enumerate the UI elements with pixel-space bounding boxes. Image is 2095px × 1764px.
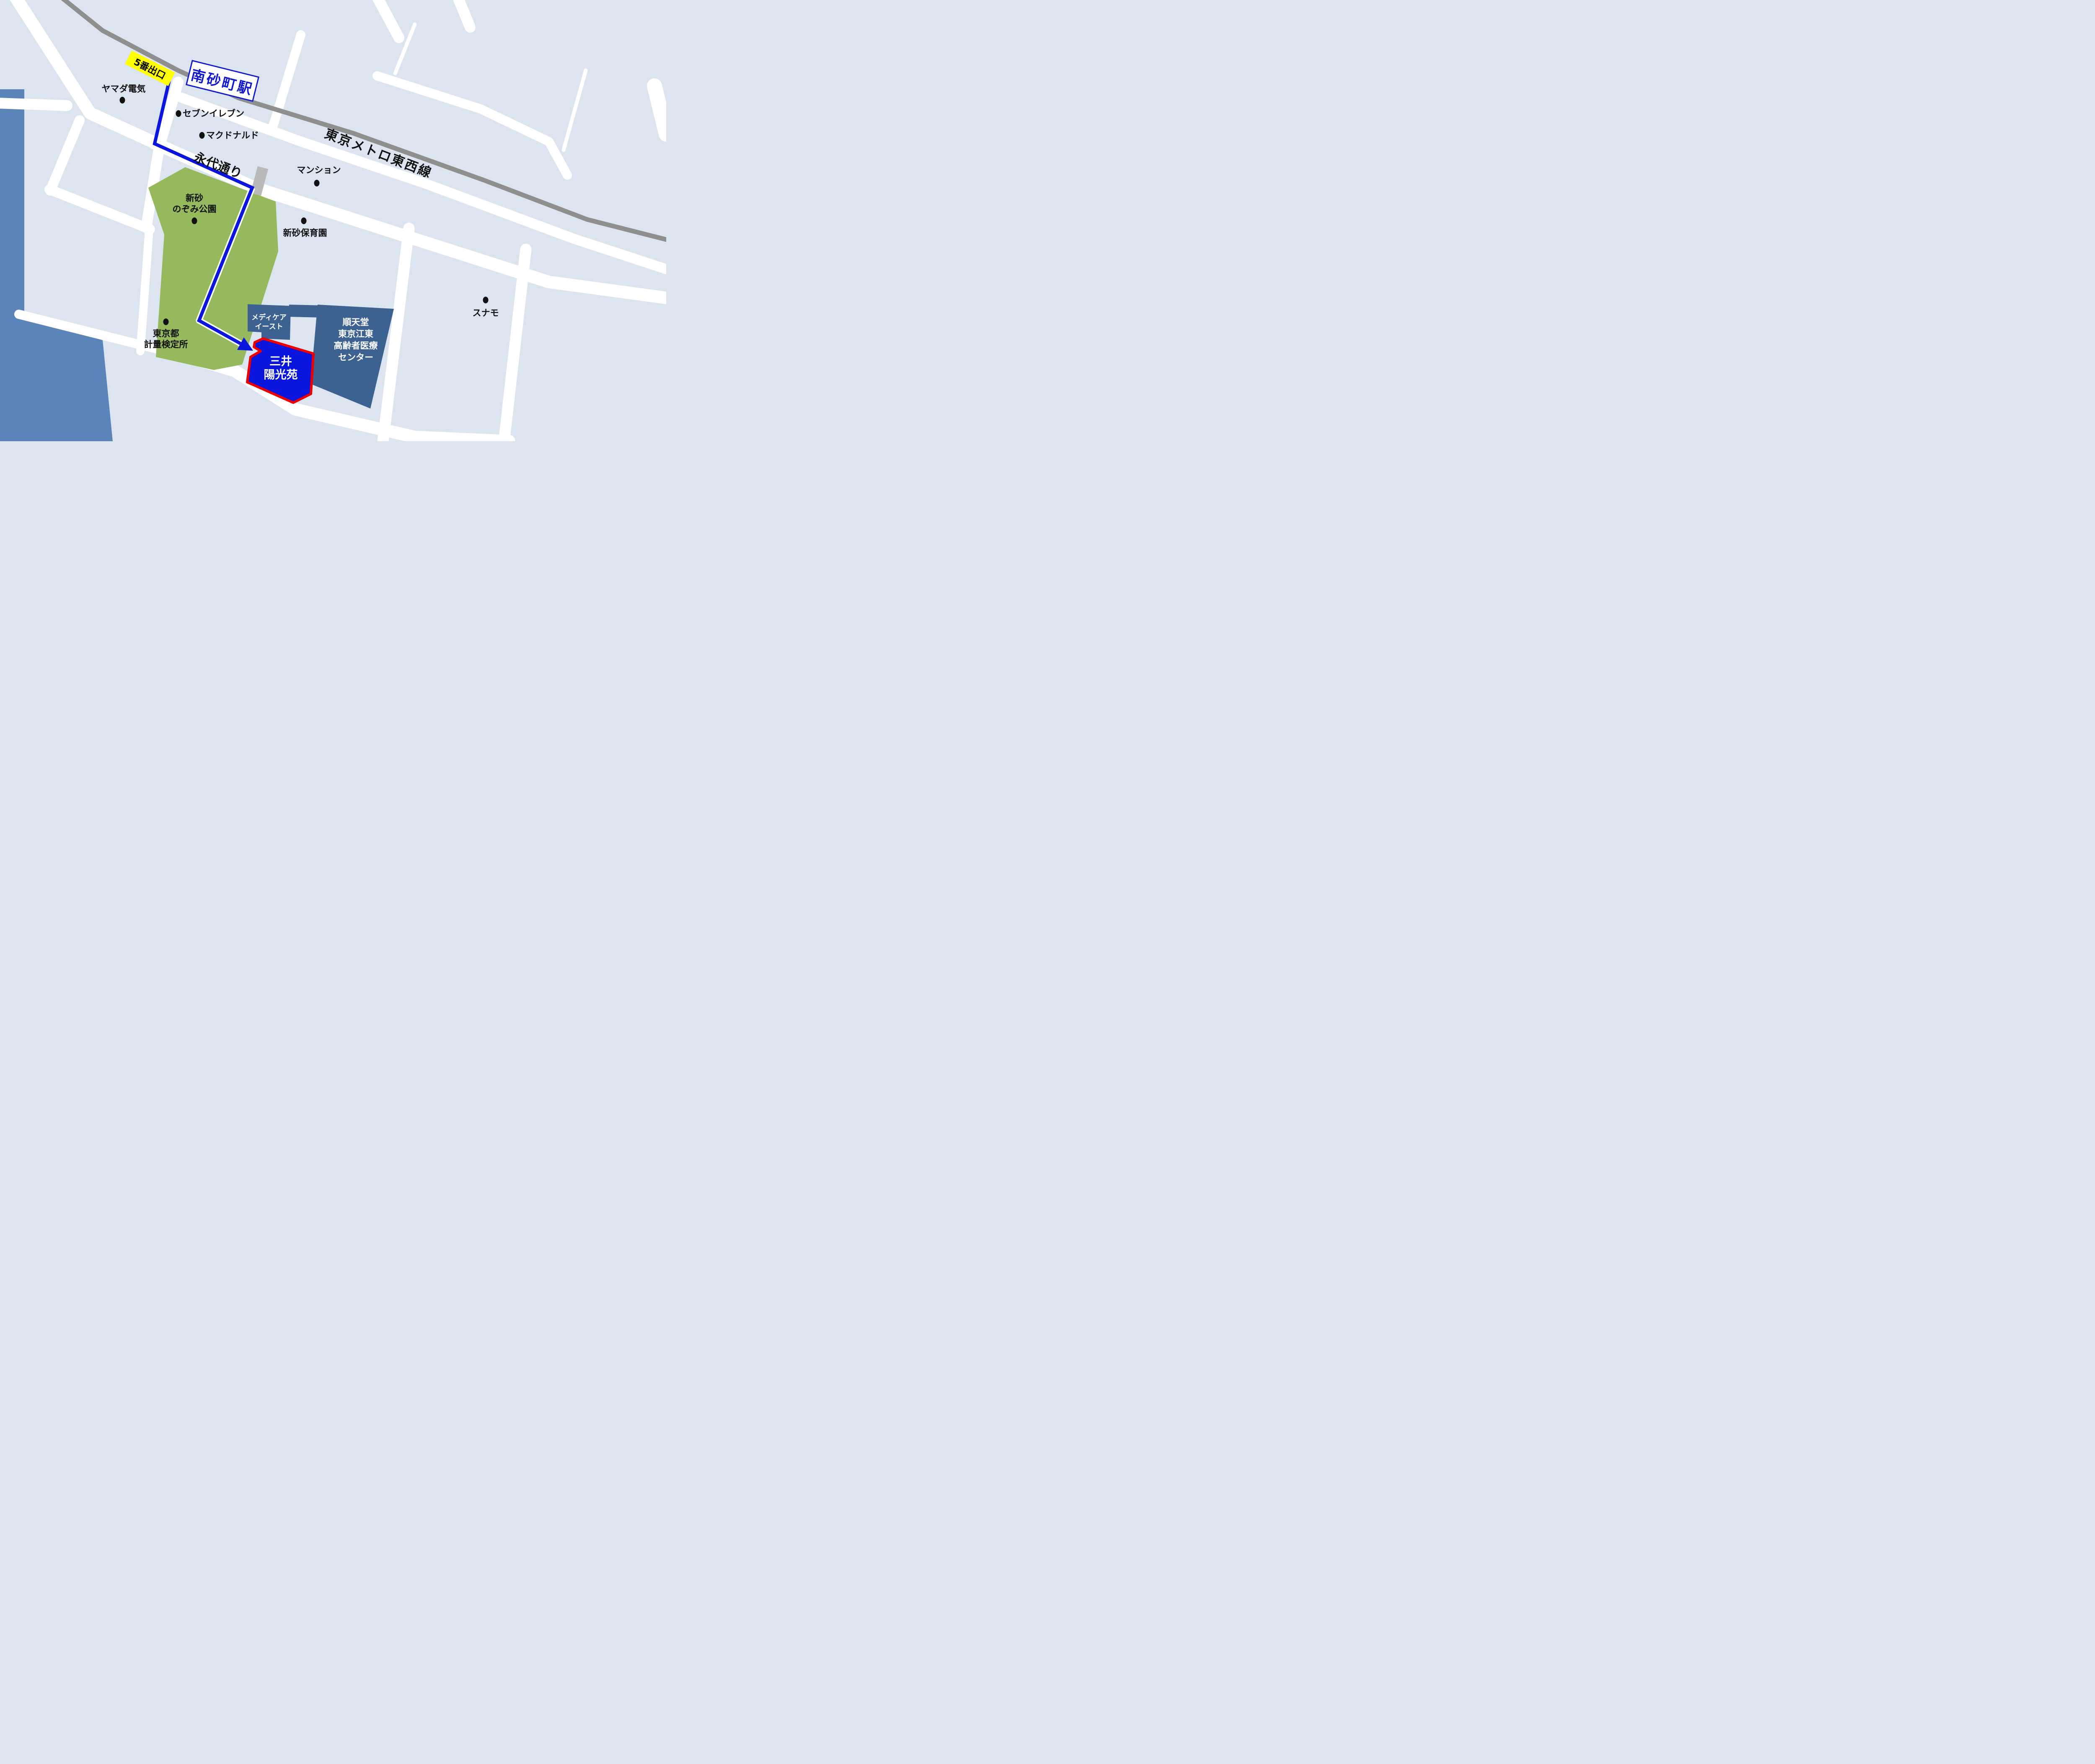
access-map: 5番出口 南砂町駅 永代通り 東京メトロ東西線 ヤマダ電気 セブンイレブン マク… (0, 0, 666, 441)
poi-seven-eleven: セブンイレブン (183, 108, 244, 119)
hoikuen-dot (301, 217, 307, 224)
road-block-south (49, 189, 150, 229)
poi-sunamo: スナモ (473, 308, 499, 318)
medicare-label: メディケア イースト (251, 313, 287, 331)
nozomi-park-dot (192, 217, 197, 224)
road-left-horizontal (0, 103, 67, 106)
destination-label: 三井 陽光苑 (264, 355, 298, 383)
mcdonalds-dot (199, 132, 205, 139)
poi-nozomi-park: 新砂 のぞみ公園 (173, 193, 217, 215)
road-top-stub-1 (374, 0, 399, 38)
poi-hoikuen: 新砂保育園 (283, 228, 327, 238)
poi-keiryo: 東京都 計量検定所 (144, 328, 188, 350)
juntendo-label: 順天堂 東京江東 高齢者医療 センター (334, 317, 378, 364)
poi-mansion: マンション (297, 165, 341, 176)
mansion-dot (314, 180, 320, 186)
poi-yamada: ヤマダ電気 (102, 83, 146, 94)
road-vertical-east-2 (504, 249, 526, 441)
road-thin-north-2 (564, 70, 586, 150)
sunamo-dot (483, 297, 489, 303)
road-top-stub-2 (455, 0, 470, 27)
seven-eleven-dot (176, 110, 181, 117)
poi-mcdonalds: マクドナルド (206, 130, 259, 141)
keiryo-dot (163, 318, 169, 325)
yamada-dot (120, 97, 125, 103)
water-area (0, 89, 113, 441)
road-block-west (50, 120, 80, 191)
road-right-edge (654, 86, 666, 134)
map-canvas (0, 0, 666, 441)
